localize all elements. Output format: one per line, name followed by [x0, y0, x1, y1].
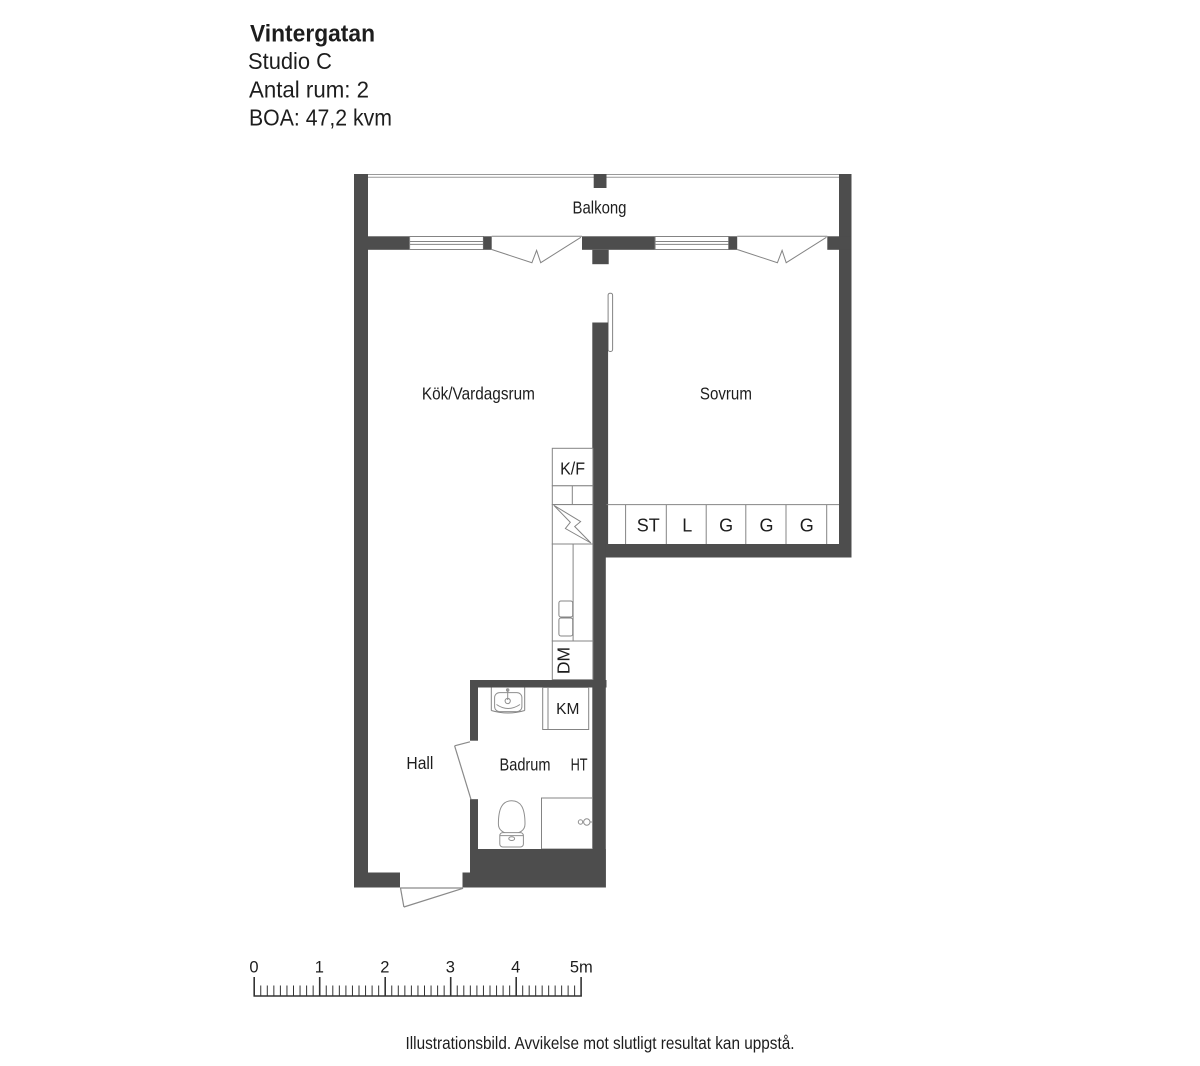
- svg-text:5m: 5m: [570, 959, 593, 977]
- svg-text:Vintergatan: Vintergatan: [250, 21, 375, 48]
- svg-text:0: 0: [249, 959, 258, 977]
- svg-text:Illustrationsbild. Avvikelse m: Illustrationsbild. Avvikelse mot slutlig…: [406, 1033, 795, 1053]
- svg-text:G: G: [719, 516, 733, 536]
- svg-text:HT: HT: [571, 754, 588, 774]
- svg-text:BOA: 47,2 kvm: BOA: 47,2 kvm: [249, 105, 392, 131]
- svg-text:2: 2: [380, 959, 389, 977]
- svg-text:KM: KM: [556, 701, 579, 718]
- svg-text:G: G: [800, 516, 814, 536]
- svg-text:Kök/Vardagsrum: Kök/Vardagsrum: [422, 383, 535, 403]
- svg-text:DM: DM: [553, 647, 573, 674]
- svg-text:Antal rum: 2: Antal rum: 2: [249, 77, 369, 103]
- svg-text:K/F: K/F: [560, 459, 585, 479]
- svg-text:G: G: [759, 516, 773, 536]
- svg-text:L: L: [682, 516, 692, 536]
- svg-text:Hall: Hall: [406, 753, 433, 773]
- svg-text:Balkong: Balkong: [573, 198, 627, 218]
- svg-text:4: 4: [511, 959, 520, 977]
- svg-text:1: 1: [315, 959, 324, 977]
- svg-text:ST: ST: [637, 516, 660, 536]
- svg-text:Sovrum: Sovrum: [700, 383, 752, 403]
- svg-text:Studio C: Studio C: [248, 48, 332, 74]
- svg-text:3: 3: [446, 959, 455, 977]
- svg-text:Badrum: Badrum: [500, 754, 551, 774]
